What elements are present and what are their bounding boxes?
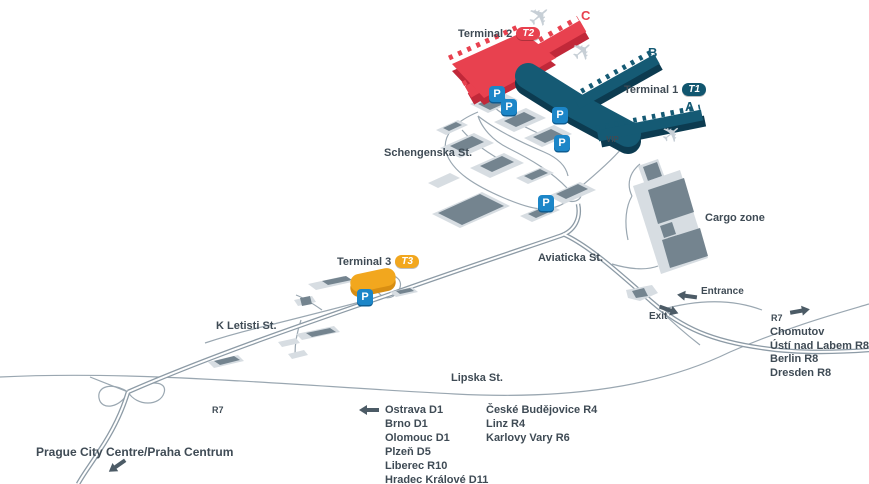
k-letisti-street-label: K Letisti St. — [216, 320, 277, 332]
parking-icon: P — [554, 135, 570, 151]
schengenska-street-label: Schengenska St. — [384, 147, 472, 159]
destinations-south-col1: Ostrava D1 Brno D1 Olomouc D1 Plzeň D5 L… — [385, 403, 488, 484]
r7-west-label: R7 — [212, 404, 224, 416]
destinations-south-col2: České Budějovice R4 Linz R4 Karlovy Vary… — [486, 403, 597, 445]
road-slip-north — [660, 302, 762, 310]
destination-item: Berlin R8 — [770, 353, 869, 367]
destination-item: České Budějovice R4 — [486, 403, 597, 417]
road-vip — [578, 148, 622, 189]
exit-label: Exit — [649, 311, 667, 323]
entrance-label: Entrance — [701, 286, 744, 298]
destination-item: Ústí nad Labem R8 — [770, 340, 869, 354]
terminal-2-label: Terminal 2 — [458, 28, 512, 40]
destination-item: Brno D1 — [385, 417, 488, 431]
aviaticka-street-label: Aviaticka St. — [538, 252, 603, 264]
road-cargo-spur — [612, 264, 658, 269]
pier-b-label: B — [648, 45, 657, 60]
destination-item: Hradec Králové D11 — [385, 473, 488, 484]
terminal-3-label: Terminal 3 — [337, 256, 391, 268]
terminal-1-label: Terminal 1 — [624, 84, 678, 96]
terminal-3-label-row: Terminal 3 T3 — [337, 255, 419, 268]
terminal-1-badge: T1 — [682, 83, 706, 96]
cargo-zone-label: Cargo zone — [705, 212, 765, 224]
entrance-arrow-icon — [676, 290, 697, 303]
road-lipska — [0, 304, 869, 395]
destination-item: Karlovy Vary R6 — [486, 431, 597, 445]
destination-item: Olomouc D1 — [385, 431, 488, 445]
lipska-street-label: Lipska St. — [451, 372, 503, 384]
destination-item: Plzeň D5 — [385, 445, 488, 459]
road-cargo-side-2 — [626, 196, 632, 240]
destination-item: Ostrava D1 — [385, 403, 488, 417]
terminal-1-label-row: Terminal 1 T1 — [624, 83, 706, 96]
destination-item: Linz R4 — [486, 417, 597, 431]
parking-icon: P — [501, 99, 517, 115]
r7-east-arrow-icon — [789, 304, 810, 317]
vip-label: VIP — [606, 134, 619, 146]
parking-icon: P — [552, 107, 568, 123]
destination-item: Liberec R10 — [385, 459, 488, 473]
prague-centre-label: Prague City Centre/Praha Centrum — [36, 446, 233, 458]
pier-c-label: C — [581, 8, 590, 23]
terminal-2-badge: T2 — [516, 27, 540, 40]
pier-a-label: A — [685, 99, 694, 114]
parking-icon: P — [538, 195, 554, 211]
prague-centre-arrow-icon — [106, 456, 128, 476]
r7-east-label: R7 — [771, 312, 783, 324]
road-interchange-link — [90, 377, 128, 392]
destinations-northeast: Chomutov Ústí nad Labem R8 Berlin R8 Dre… — [770, 326, 869, 380]
destination-item: Dresden R8 — [770, 367, 869, 381]
destination-item: Chomutov — [770, 326, 869, 340]
parking-icon: P — [357, 289, 373, 305]
destinations-west-arrow-icon — [359, 405, 379, 415]
airport-map: ✈ ✈ ✈ C B A Terminal 2 T2 Terminal 1 T1 … — [0, 0, 869, 484]
terminal-2-label-row: Terminal 2 T2 — [458, 27, 540, 40]
cargo-zone-building — [633, 159, 708, 274]
terminal-3-badge: T3 — [395, 255, 419, 268]
